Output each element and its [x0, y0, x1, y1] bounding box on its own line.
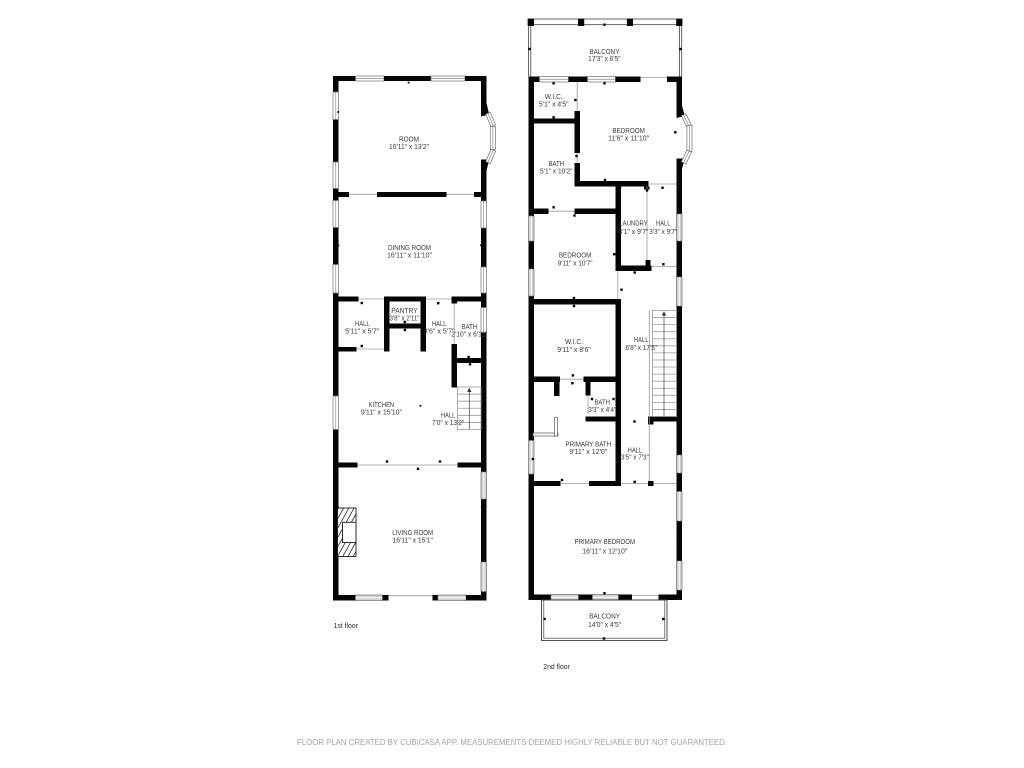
- svg-text:3′3" x 9′7": 3′3" x 9′7": [649, 227, 677, 236]
- svg-text:5′11" x 5′7": 5′11" x 5′7": [345, 326, 379, 335]
- svg-text:2′10" x 6′11": 2′10" x 6′11": [451, 329, 487, 338]
- svg-text:5′1" x 4′5": 5′1" x 4′5": [539, 99, 569, 108]
- svg-text:4′1" x 9′7": 4′1" x 9′7": [619, 227, 649, 236]
- svg-text:6′8" x 17′5": 6′8" x 17′5": [625, 343, 657, 352]
- svg-text:16′11" x 11′10": 16′11" x 11′10": [387, 250, 432, 259]
- svg-text:9′11" x 8′6": 9′11" x 8′6": [557, 345, 591, 354]
- svg-text:3′3" x 4′4": 3′3" x 4′4": [588, 405, 616, 414]
- svg-text:PRIMARY BEDROOM: PRIMARY BEDROOM: [575, 537, 636, 546]
- svg-text:FLOOR PLAN CREATED BY CUBICASA: FLOOR PLAN CREATED BY CUBICASA APP. MEAS…: [297, 737, 727, 747]
- svg-text:5′1" x 10′2": 5′1" x 10′2": [540, 167, 573, 176]
- svg-text:17′3" x 6′5": 17′3" x 6′5": [588, 54, 621, 63]
- svg-text:1st floor: 1st floor: [334, 623, 359, 630]
- svg-text:16′11" x 13′2": 16′11" x 13′2": [389, 142, 429, 151]
- svg-text:16′11" x 15′1": 16′11" x 15′1": [392, 535, 433, 544]
- svg-text:BALCONY: BALCONY: [589, 611, 620, 620]
- svg-text:9′11" x 10′7": 9′11" x 10′7": [558, 259, 593, 268]
- svg-text:11′6" x 11′10": 11′6" x 11′10": [608, 134, 649, 143]
- svg-text:9′11" x 15′10": 9′11" x 15′10": [361, 407, 402, 416]
- svg-text:16′11" x 12′10": 16′11" x 12′10": [582, 546, 627, 555]
- svg-text:3′8" x 2′11": 3′8" x 2′11": [390, 313, 420, 322]
- svg-text:2nd floor: 2nd floor: [543, 664, 570, 671]
- svg-text:14′0" x 4′5": 14′0" x 4′5": [588, 620, 621, 629]
- svg-text:9′11" x 12′0": 9′11" x 12′0": [569, 447, 607, 456]
- svg-text:7′0" x 13′2": 7′0" x 13′2": [432, 418, 465, 427]
- svg-text:3′5" x 7′3": 3′5" x 7′3": [621, 453, 649, 462]
